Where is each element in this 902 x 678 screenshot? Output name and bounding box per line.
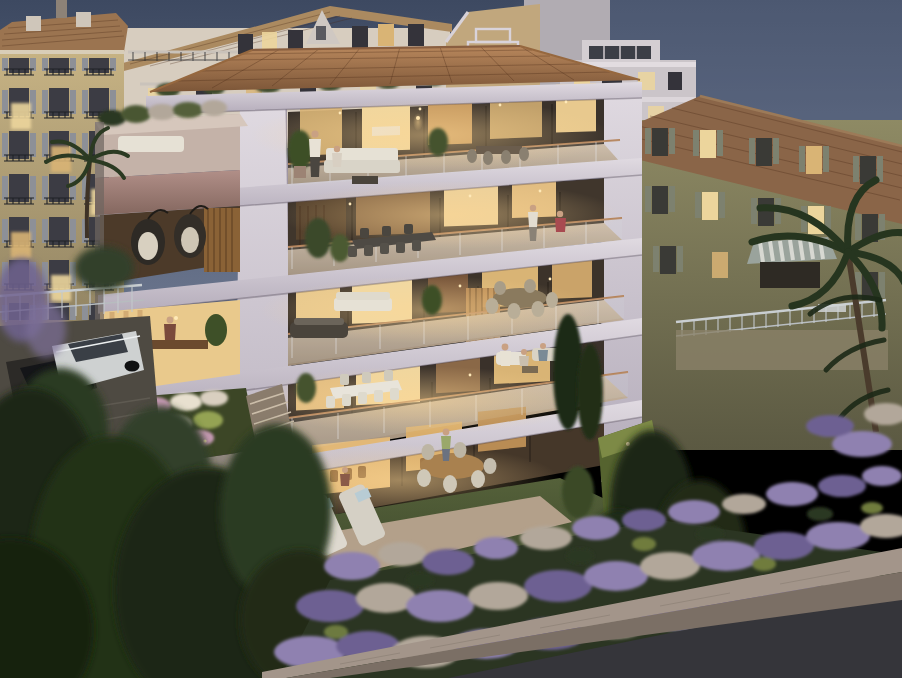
architectural-render — [0, 0, 902, 678]
render-stage — [0, 0, 902, 678]
